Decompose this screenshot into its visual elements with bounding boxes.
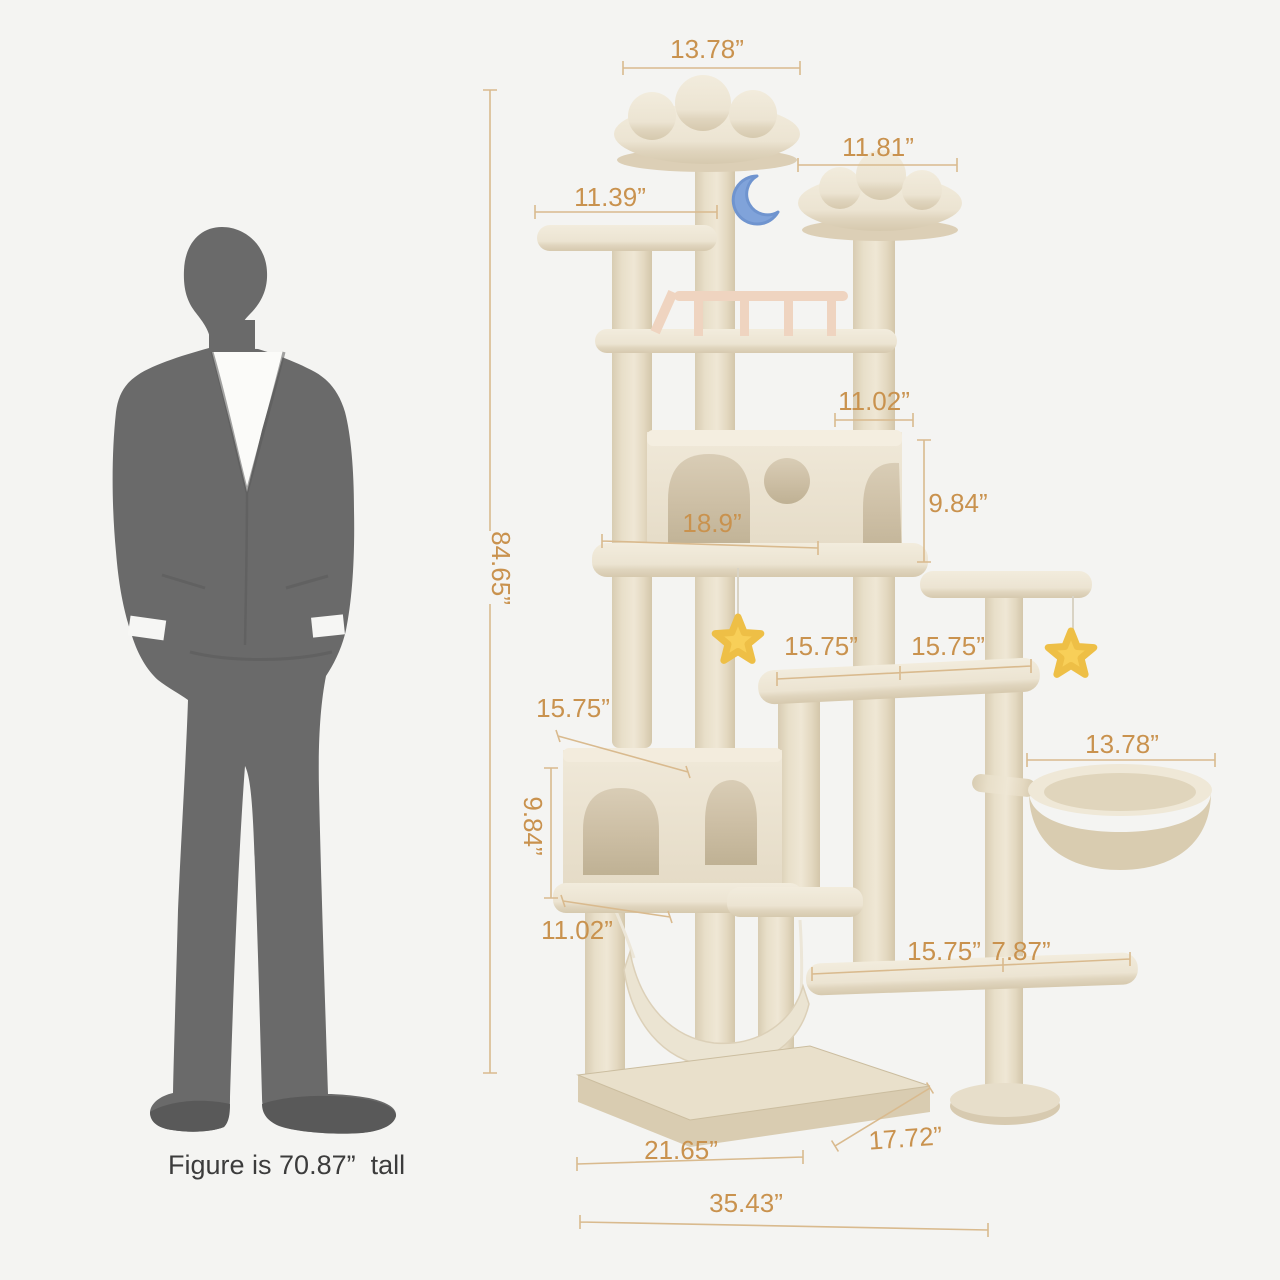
human-silhouette <box>113 227 396 1134</box>
dim-base-front-width: 21.65” <box>644 1135 718 1165</box>
dim-total-height: 84.65” <box>486 531 516 605</box>
dim-lower-condo-depth: 11.02” <box>541 915 613 945</box>
dim-bottom-step-width: 15.75” <box>907 936 981 966</box>
top-cloud-perch <box>614 75 800 172</box>
dim-lower-condo-height: 9.84” <box>518 796 548 855</box>
silhouette-right-cuff <box>311 614 345 637</box>
dim-hanging-basket-width: 13.78” <box>1085 729 1159 759</box>
upper-right-platform <box>920 571 1092 598</box>
moon-toy <box>733 176 778 224</box>
diagram-canvas: 13.78” 11.81” 11.39” 84.65” 11.02” 9.84”… <box>0 0 1280 1280</box>
right-cloud-perch <box>798 150 962 241</box>
dim-lower-condo-width: 15.75” <box>536 693 610 723</box>
post <box>612 243 652 748</box>
star-toy <box>1048 631 1094 674</box>
silhouette-right-shoe <box>262 1096 396 1134</box>
dim-mid-platform-right-width: 15.75” <box>911 631 985 661</box>
dim-upper-condo-width: 18.9” <box>682 508 741 538</box>
dim-base-side-depth: 17.72” <box>868 1120 944 1155</box>
left-perch <box>537 225 717 251</box>
dim-upper-right-perch-width: 11.81” <box>842 132 914 162</box>
dim-bottom-step-depth: 7.87” <box>991 936 1050 966</box>
dim-top-perch-width: 13.78” <box>670 34 744 64</box>
cat-tree <box>537 75 1212 1147</box>
product-dimension-diagram: 13.78” 11.81” 11.39” 84.65” 11.02” 9.84”… <box>0 0 1280 1280</box>
dim-upper-condo-height: 9.84” <box>928 488 987 518</box>
dim-overall-width: 35.43” <box>709 1188 783 1218</box>
lower-condo <box>563 748 782 897</box>
condo-arch-opening <box>705 780 757 865</box>
condo-arch-opening <box>583 788 659 875</box>
dim-mid-platform-left-width: 15.75” <box>784 631 858 661</box>
dim-upper-condo-top-depth: 11.02” <box>838 386 910 416</box>
upper-condo-platform <box>592 543 928 577</box>
dim-upper-left-perch-width: 11.39” <box>574 182 646 212</box>
post <box>778 690 820 895</box>
condo-peek-hole <box>764 458 810 504</box>
figure-height-caption: Figure is 70.87” tall <box>168 1150 405 1181</box>
post <box>695 150 735 1080</box>
small-step-platform <box>727 887 863 917</box>
right-post-base-disc-top <box>950 1083 1060 1117</box>
